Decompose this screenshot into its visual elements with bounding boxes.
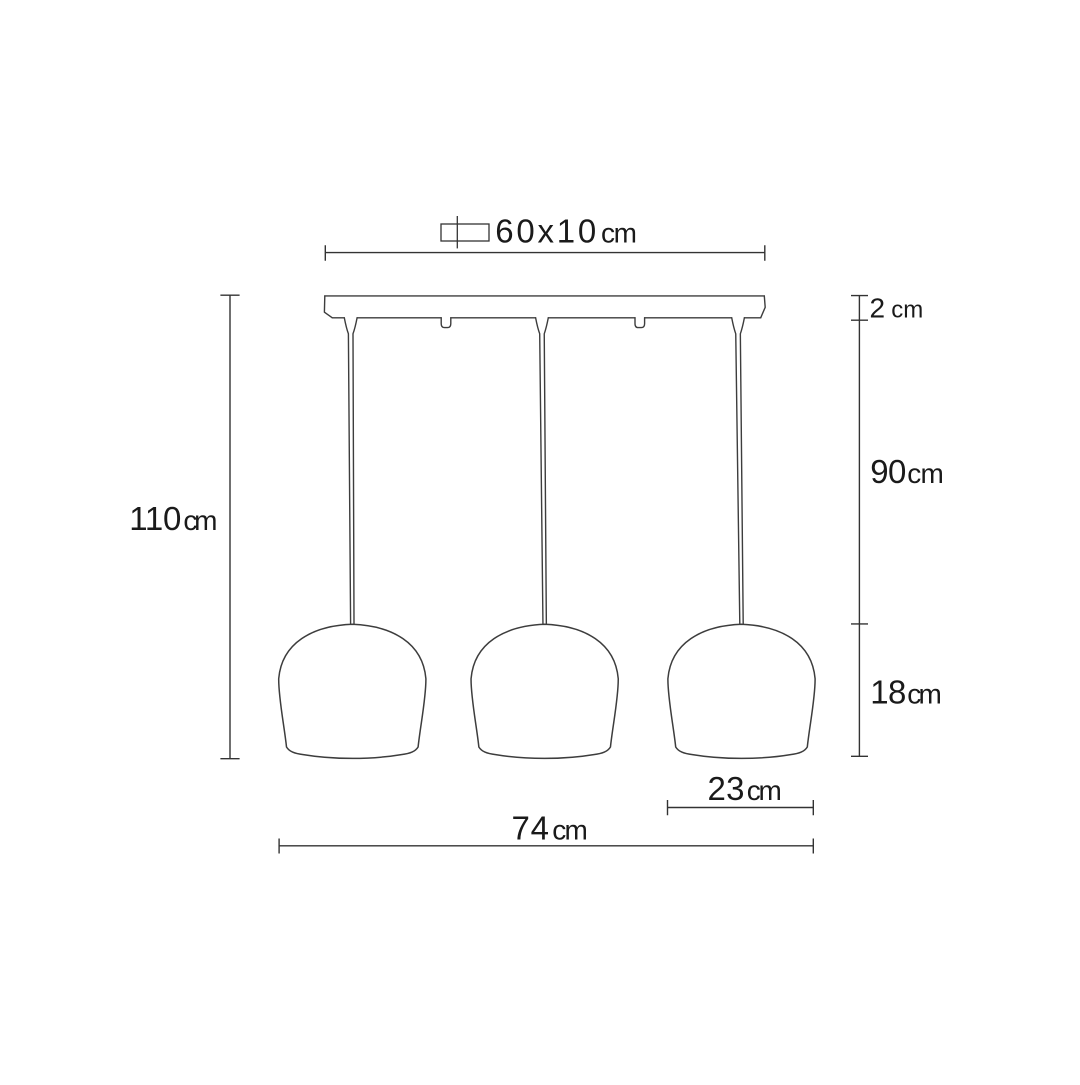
- svg-text:cm: cm: [183, 505, 217, 536]
- svg-text:2: 2: [870, 293, 886, 324]
- svg-text:cm: cm: [552, 815, 588, 846]
- svg-text:cm: cm: [747, 775, 782, 806]
- svg-text:74: 74: [512, 810, 550, 847]
- svg-text:90: 90: [870, 453, 906, 490]
- svg-text:110: 110: [129, 500, 181, 537]
- svg-text:18: 18: [870, 674, 906, 711]
- svg-text:60x10: 60x10: [495, 212, 596, 249]
- svg-text:cm: cm: [891, 297, 923, 324]
- svg-text:cm: cm: [601, 217, 637, 248]
- svg-text:cm: cm: [907, 458, 944, 489]
- svg-text:23: 23: [708, 770, 745, 807]
- svg-text:cm: cm: [907, 679, 942, 710]
